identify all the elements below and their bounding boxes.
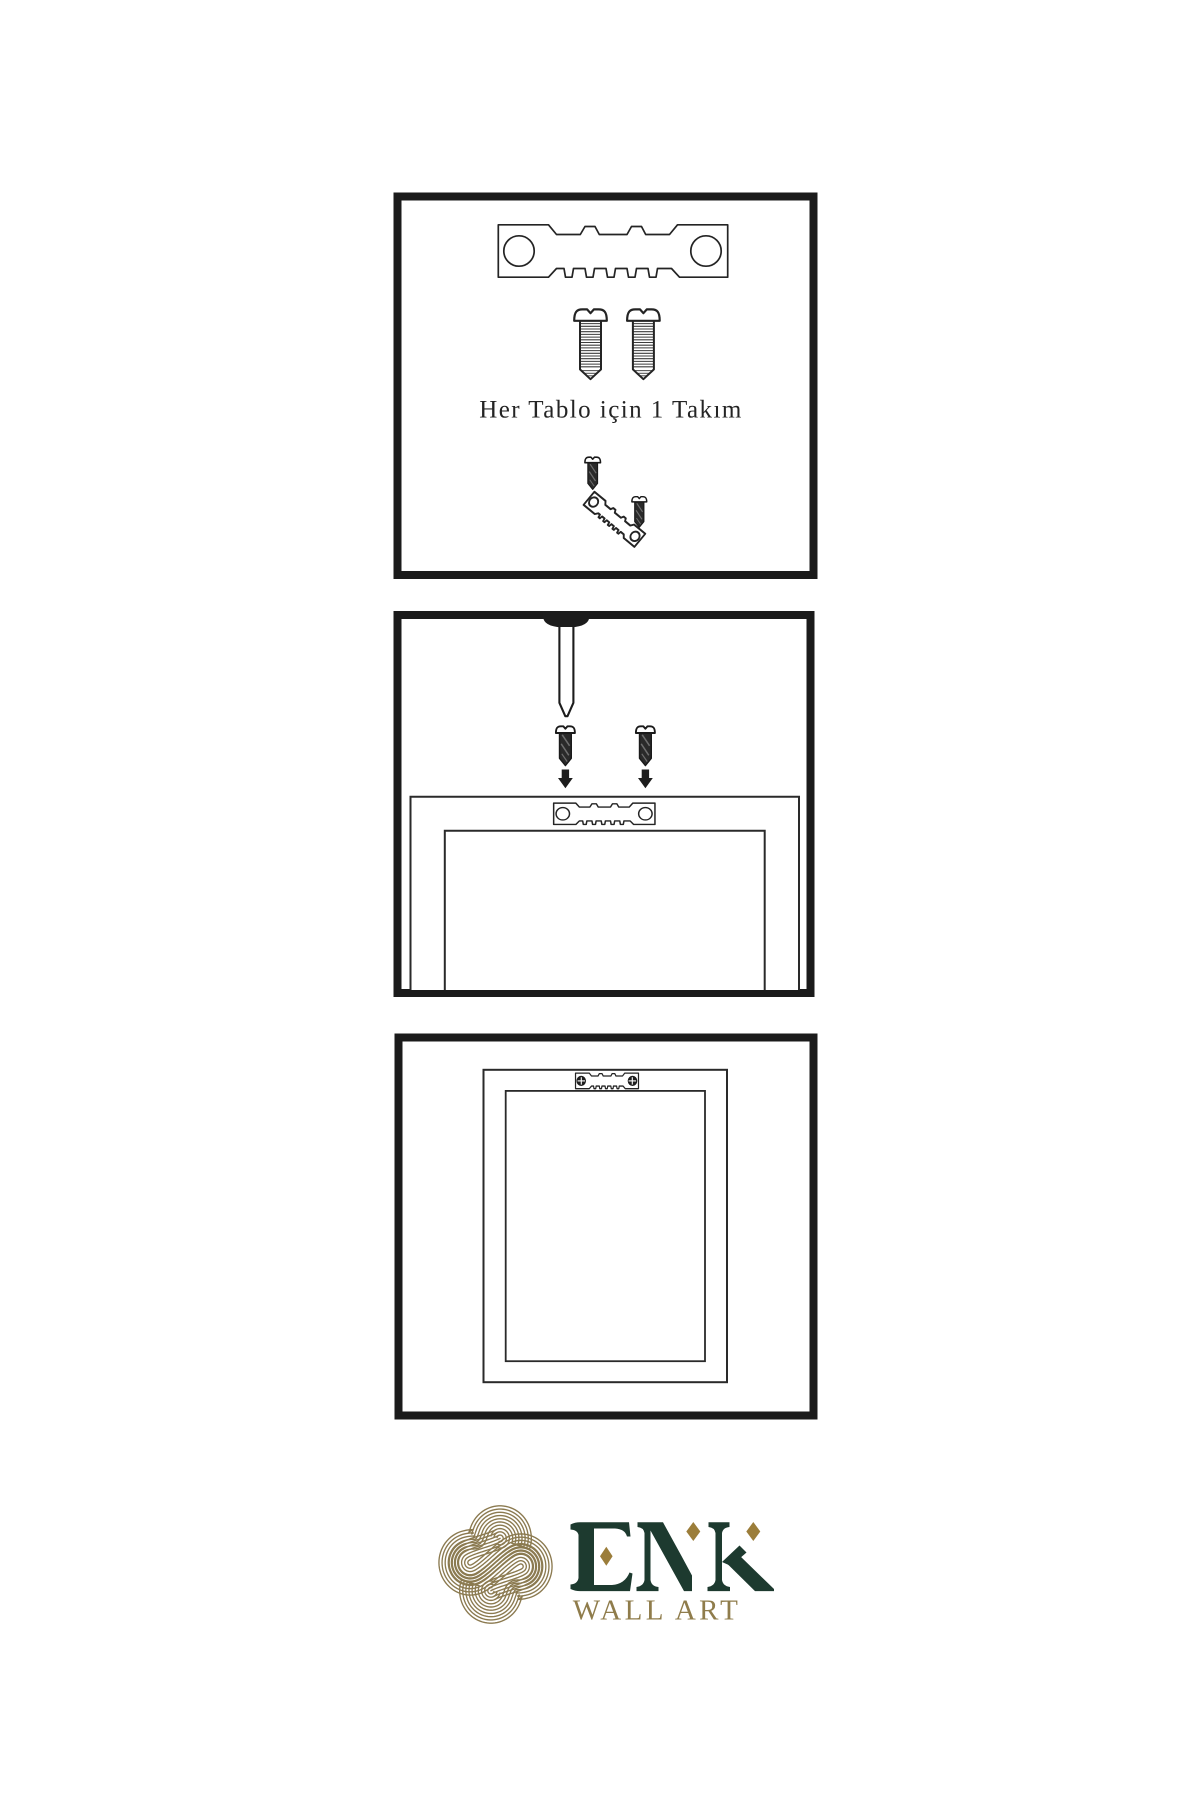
svg-text:WALL ART: WALL ART <box>573 1595 742 1627</box>
svg-text:Her Tablo için 1 Takım: Her Tablo için 1 Takım <box>479 397 743 424</box>
